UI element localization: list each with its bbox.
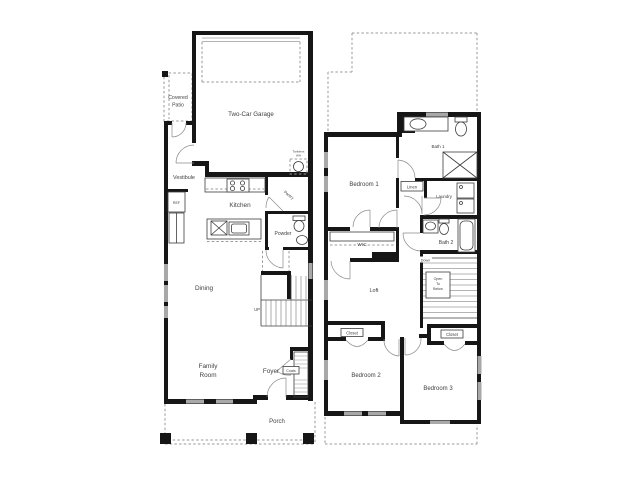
ref-label: REF [173, 201, 181, 205]
open-to-below-box: Open To Below [426, 272, 450, 298]
stove-icon [227, 179, 249, 192]
second-floor-plan: Open To Below Down Bedroom 1 Bath 1 [324, 33, 482, 444]
bath1-shower-icon [443, 152, 477, 178]
up-label: UP [254, 307, 260, 312]
pantry-label: Pantry [283, 189, 295, 200]
covered-patio-label-line2: Patio [172, 103, 184, 109]
powder-sink-icon [297, 236, 308, 245]
powder-toilet-icon [293, 216, 305, 232]
floor-plan-svg: Covered Patio Two-Car Garage Tankless WH… [0, 0, 640, 480]
kitchen-label: Kitchen [229, 202, 251, 209]
coats-label-box: Coats [283, 367, 299, 375]
linen-label-box: Linen [401, 182, 423, 192]
first-floor-doors [172, 123, 291, 397]
floor-plan-canvas: Covered Patio Two-Car Garage Tankless WH… [0, 0, 640, 480]
coats-closet [294, 352, 308, 397]
laundry-label: Laundry [436, 194, 453, 199]
closet-bedroom3-label: Closet [446, 332, 459, 337]
bath2-toilet-icon [439, 219, 449, 235]
bath1-toilet-icon [455, 117, 467, 136]
bath1-label: Bath 1 [431, 144, 445, 149]
open-to-below-line2: To [436, 282, 440, 286]
family-room-label-line1: Family [199, 363, 219, 370]
closet-bedroom2-label: Closet [346, 331, 359, 336]
powder-label: Powder [275, 231, 292, 237]
first-floor-plan: Covered Patio Two-Car Garage Tankless WH… [160, 31, 315, 444]
garage-label: Two-Car Garage [228, 111, 274, 118]
porch [160, 402, 315, 444]
bedroom1-label: Bedroom 1 [349, 182, 379, 188]
stairs-down: Open To Below Down [419, 257, 477, 319]
family-room-label-line2: Room [199, 372, 216, 379]
pantry-cabinet [169, 213, 184, 243]
covered-patio-label-line1: Covered [168, 95, 188, 101]
washer-dryer-icon [457, 183, 474, 213]
bath2-tub-icon [458, 219, 475, 252]
foyer-label: Foyer [263, 368, 280, 375]
closet-bedroom3-label-box: Closet [441, 330, 463, 338]
stairs-up [261, 251, 312, 326]
bath2-sink-icon [423, 220, 438, 233]
garage-door [202, 38, 300, 82]
bedroom3-label: Bedroom 3 [423, 386, 453, 392]
tankless-label-line2: WH [296, 154, 301, 158]
coats-label: Coats [286, 369, 296, 373]
wic-label: WIC [357, 242, 367, 248]
down-label: Down [421, 259, 430, 263]
tankless-water-heater-icon [290, 159, 307, 174]
open-to-below-line1: Open [434, 277, 443, 281]
vestibule-label: Vestibule [173, 175, 195, 181]
loft-label: Loft [370, 288, 379, 294]
first-floor-walls [164, 31, 313, 404]
open-to-below-line3: Below [433, 287, 443, 291]
bedroom2-label: Bedroom 2 [351, 373, 381, 379]
bath2-label: Bath 2 [439, 240, 454, 246]
kitchen-island [207, 219, 261, 242]
linen-label: Linen [407, 185, 418, 190]
porch-label: Porch [269, 419, 285, 425]
bath1-vanity-sink-icon [404, 117, 448, 131]
closet-bedroom2-label-box: Closet [341, 329, 363, 337]
dining-label: Dining [195, 285, 214, 292]
